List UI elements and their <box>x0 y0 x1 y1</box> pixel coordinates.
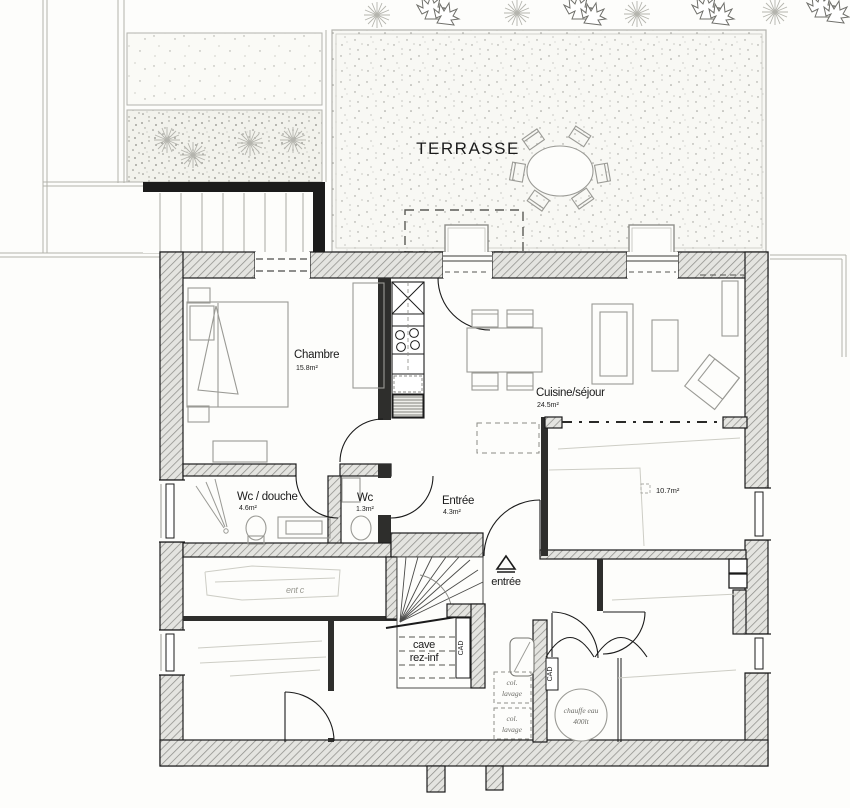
label-chauffe-eau-capacity: 400lt <box>573 717 589 726</box>
floor-plan-drawing: TERRASSE <box>0 0 850 808</box>
terrace-table <box>527 146 593 196</box>
water-heater <box>555 689 607 741</box>
label-col-lavage-1a: col. <box>506 678 517 687</box>
terrace: TERRASSE <box>332 30 766 253</box>
terrace-label: TERRASSE <box>416 139 520 158</box>
label-rez-inf: rez-inf <box>410 652 440 664</box>
label-chauffe-eau: chauffe eau <box>564 706 599 715</box>
kitchen-sink <box>393 395 423 417</box>
wall-stub <box>427 766 445 792</box>
label-col-lavage-2a: col. <box>506 714 517 723</box>
terrace-door-landing <box>445 225 488 253</box>
exterior-stair <box>143 182 325 253</box>
label-wc: Wc <box>357 492 374 504</box>
wall-stub <box>486 766 503 790</box>
label-faint-note: ent c <box>286 585 305 595</box>
label-wc-douche: Wc / douche <box>237 491 298 503</box>
label-entree-area: 4.3m² <box>443 509 462 516</box>
plants-row <box>364 0 849 28</box>
label-cave: cave <box>413 639 435 651</box>
staircase-cave: cave rez-inf CAD <box>386 557 485 688</box>
label-cad-radiator: CAD <box>458 641 465 656</box>
window-left-2 <box>159 630 185 675</box>
window-right-2 <box>745 634 771 673</box>
label-cuisine: Cuisine/séjour <box>536 387 605 399</box>
kitchen-unit <box>392 282 424 418</box>
window-chambre-top <box>255 252 310 278</box>
french-door-opening <box>443 252 492 278</box>
label-wc-area: 1.3m² <box>356 506 375 513</box>
french-door-opening <box>627 252 678 278</box>
label-cuisine-area: 24.5m² <box>537 402 559 409</box>
window-left-1 <box>159 480 185 542</box>
label-entree: Entrée <box>442 495 474 507</box>
label-10-7-area: 10.7m² <box>656 486 680 495</box>
label-chambre-area: 15.8m² <box>296 365 318 372</box>
label-wc-douche-area: 4.6m² <box>239 505 258 512</box>
electrical-panel <box>729 559 747 588</box>
floor-plan: TERRASSE <box>0 0 850 808</box>
window-right-1 <box>745 488 771 540</box>
label-chambre: Chambre <box>294 349 339 361</box>
label-cad-radiator-2: CAD <box>547 667 554 682</box>
label-entrance-arrow: entrée <box>491 576 521 588</box>
label-col-lavage-2b: lavage <box>502 725 523 734</box>
garden-beds <box>127 33 322 182</box>
label-col-lavage-1b: lavage <box>502 689 523 698</box>
terrace-door-landing <box>629 225 674 253</box>
